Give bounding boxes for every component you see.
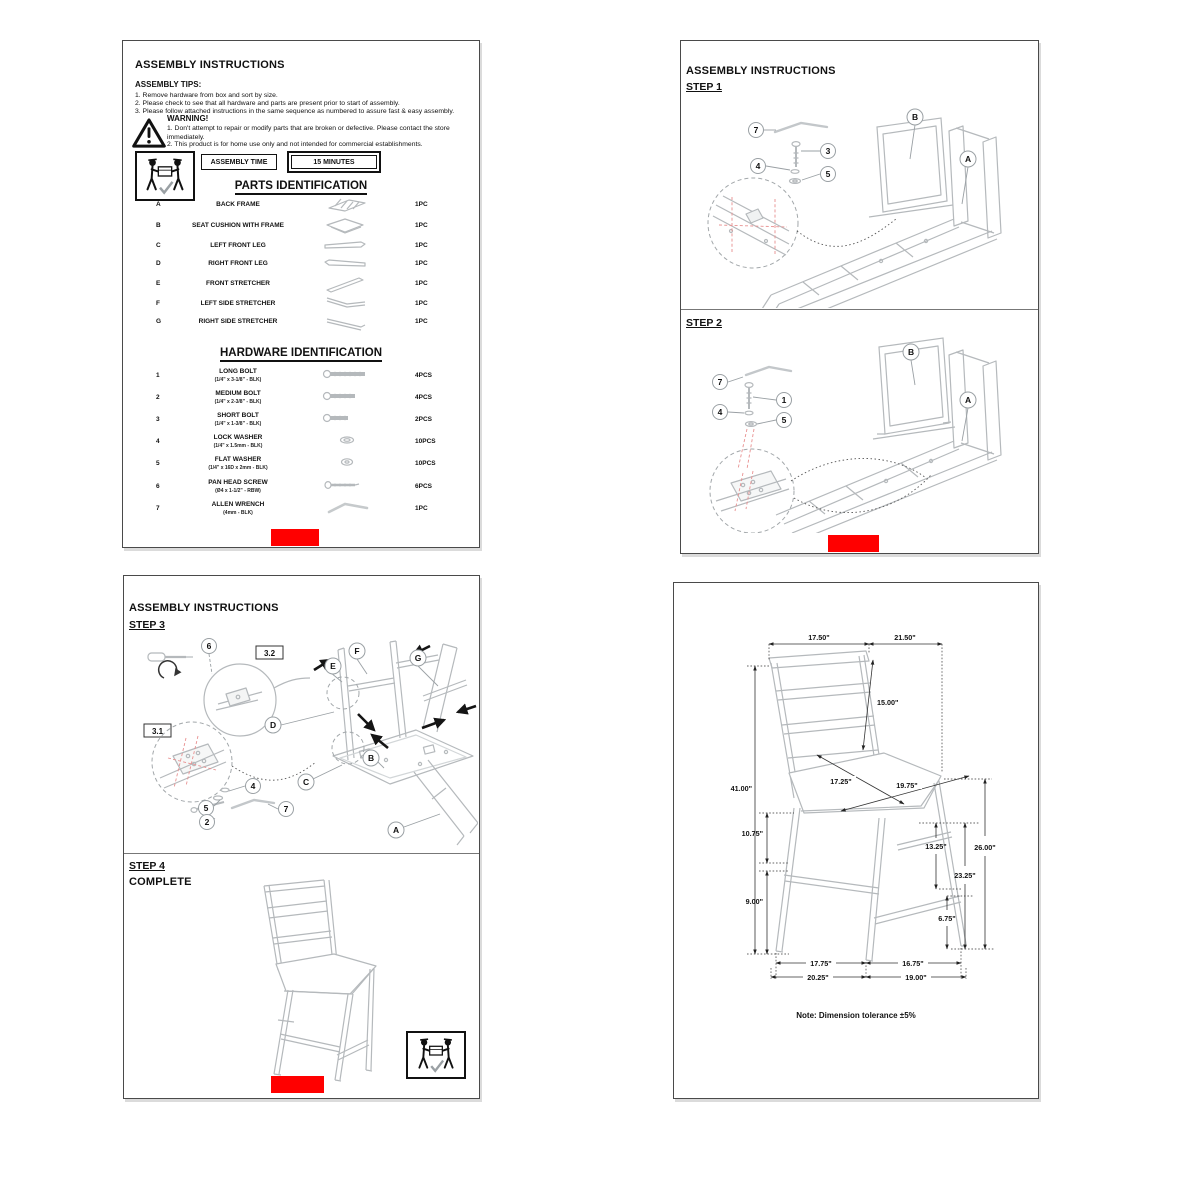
callout-5: 5: [821, 167, 836, 182]
svg-text:5: 5: [826, 169, 831, 179]
dim-overall-depth: 20.25": [807, 973, 828, 982]
short-bolt-icon: [321, 411, 373, 425]
dim-foot-span-left: 17.75": [810, 959, 831, 968]
assembly-time-value: 15 MINUTES: [313, 159, 354, 166]
callout-2: 2: [200, 815, 215, 830]
step3-label: STEP 3: [129, 619, 165, 631]
svg-text:A: A: [393, 825, 399, 835]
step4-status: COMPLETE: [129, 876, 192, 888]
part-qty: 1PC: [415, 318, 428, 325]
dim-overall-width: 19.00": [905, 973, 926, 982]
hw-qty: 1PC: [415, 505, 428, 512]
callout-B: B: [903, 344, 919, 360]
part-qty: 1PC: [415, 222, 428, 229]
part-qty: 1PC: [415, 242, 428, 249]
page-3: ASSEMBLY INSTRUCTIONS STEP 3: [123, 575, 480, 1099]
warning-2: 2. This product is for home use only and…: [167, 141, 457, 150]
hw-id: 5: [156, 460, 160, 467]
hw-qty: 2PCS: [415, 416, 432, 423]
svg-text:G: G: [415, 653, 422, 663]
dim-seat-depth: 17.25": [830, 777, 851, 786]
part-thumb-seat-cushion: [321, 217, 369, 234]
svg-text:4: 4: [718, 407, 723, 417]
hw-name: LOCK WASHER: [163, 434, 313, 441]
callout-F: F: [349, 643, 365, 659]
svg-text:3: 3: [826, 146, 831, 156]
hw-spec: (Ø4 x 1-1/2" - RBW): [163, 488, 313, 494]
assembly-time-value-box: 15 MINUTES: [287, 151, 381, 173]
callout-4: 4: [713, 405, 728, 420]
step-divider: [124, 853, 479, 854]
svg-text:E: E: [330, 661, 336, 671]
callout-4: 4: [751, 159, 766, 174]
tips-heading: ASSEMBLY TIPS:: [135, 80, 201, 89]
callout-A: A: [388, 822, 404, 838]
callout-4: 4: [246, 779, 261, 794]
svg-text:3.1: 3.1: [152, 727, 164, 736]
callout-G: G: [410, 650, 426, 666]
step3-diagram: 3.2 3.1: [128, 638, 478, 851]
svg-text:4: 4: [251, 781, 256, 791]
hw-qty: 10PCS: [415, 460, 436, 467]
svg-text:B: B: [368, 753, 374, 763]
svg-text:1: 1: [782, 395, 787, 405]
svg-text:A: A: [965, 395, 971, 405]
hw-id: 3: [156, 416, 160, 423]
callout-B: B: [363, 750, 379, 766]
hw-name: SHORT BOLT: [163, 412, 313, 419]
redacted-logo-block: [271, 1076, 324, 1093]
hw-qty: 6PCS: [415, 483, 432, 490]
svg-text:B: B: [908, 347, 914, 357]
flat-washer-icon: [321, 455, 373, 469]
hw-id: 6: [156, 483, 160, 490]
page3-title: ASSEMBLY INSTRUCTIONS: [129, 602, 279, 614]
dim-overall-height: 41.00": [731, 784, 752, 793]
part-name: SEAT CUSHION WITH FRAME: [163, 222, 313, 229]
hw-qty: 10PCS: [415, 438, 436, 445]
allen-wrench-icon: [321, 499, 373, 517]
svg-text:B: B: [912, 112, 918, 122]
step1-diagram: 7 3 4 5 B A: [691, 101, 1028, 308]
dim-seat-height: 26.00": [974, 843, 995, 852]
callout-B: B: [907, 109, 923, 125]
callout-D: D: [265, 717, 281, 733]
hw-spec: (1/4" x 16D x 2mm - BLK): [163, 465, 313, 471]
hw-qty: 4PCS: [415, 372, 432, 379]
callout-7: 7: [749, 123, 764, 138]
hw-id: 4: [156, 438, 160, 445]
page-4: 17.50" 21.50" 15.00" 41.00" 17.25" 19.75…: [673, 582, 1039, 1099]
part-thumb-left-side-stretcher: [321, 294, 369, 314]
page1-title: ASSEMBLY INSTRUCTIONS: [135, 59, 285, 71]
hw-spec: (1/4" x 1-3/8" - BLK): [163, 421, 313, 427]
hw-name: MEDIUM BOLT: [163, 390, 313, 397]
dim-seat-to-footrest: 13.25": [925, 842, 946, 851]
parts-heading: PARTS IDENTIFICATION: [235, 180, 367, 195]
part-id: G: [156, 318, 161, 325]
hw-id: 2: [156, 394, 160, 401]
hw-id: 7: [156, 505, 160, 512]
hw-qty: 4PCS: [415, 394, 432, 401]
part-id: D: [156, 260, 161, 267]
part-name: FRONT STRETCHER: [163, 280, 313, 287]
part-thumb-front-stretcher: [321, 274, 369, 294]
svg-text:5: 5: [204, 803, 209, 813]
part-name: RIGHT FRONT LEG: [163, 260, 313, 267]
part-id: E: [156, 280, 160, 287]
svg-text:2: 2: [205, 817, 210, 827]
instruction-sheet-canvas: ASSEMBLY INSTRUCTIONS ASSEMBLY TIPS: 1. …: [0, 0, 1200, 1200]
hw-name: LONG BOLT: [163, 368, 313, 375]
warning-1: 1. Don't attempt to repair or modify par…: [167, 125, 457, 142]
callout-1: 1: [777, 393, 792, 408]
part-thumb-right-side-stretcher: [321, 313, 369, 333]
warning-heading: WARNING!: [167, 114, 208, 123]
hw-name: PAN HEAD SCREW: [163, 479, 313, 486]
part-qty: 1PC: [415, 300, 428, 307]
callout-A: A: [960, 392, 976, 408]
hw-id: 1: [156, 372, 160, 379]
dim-foot-span-right: 16.75": [902, 959, 923, 968]
part-qty: 1PC: [415, 280, 428, 287]
long-bolt-icon: [321, 367, 373, 381]
hardware-heading: HARDWARE IDENTIFICATION: [220, 347, 382, 362]
dimension-diagram: 17.50" 21.50" 15.00" 41.00" 17.25" 19.75…: [689, 608, 1023, 998]
pan-head-screw-icon: [321, 478, 373, 492]
dim-stretcher-to-floor: 9.00": [746, 897, 763, 906]
redacted-logo-block: [828, 535, 879, 552]
part-thumb-left-front-leg: [321, 239, 369, 251]
detail-box-3-2: 3.2: [256, 646, 283, 659]
dim-seat-proj: 21.50": [894, 633, 915, 642]
redacted-logo-block: [271, 529, 319, 546]
svg-text:3.2: 3.2: [264, 649, 276, 658]
dim-seat-bottom-to-floor: 23.25": [954, 871, 975, 880]
part-name: RIGHT SIDE STRETCHER: [163, 318, 313, 325]
svg-text:D: D: [270, 720, 276, 730]
dim-back-panel: 15.00": [877, 698, 898, 707]
page-2: ASSEMBLY INSTRUCTIONS STEP 1: [680, 40, 1039, 554]
callout-C: C: [298, 774, 314, 790]
step4-label: STEP 4: [129, 860, 165, 872]
tolerance-note: Note: Dimension tolerance ±5%: [674, 1011, 1038, 1020]
part-thumb-right-front-leg: [321, 257, 369, 269]
callout-6: 6: [202, 639, 217, 654]
svg-text:7: 7: [284, 804, 289, 814]
warning-triangle-icon: [131, 117, 167, 150]
page-1: ASSEMBLY INSTRUCTIONS ASSEMBLY TIPS: 1. …: [122, 40, 480, 548]
hw-name: ALLEN WRENCH: [163, 501, 313, 508]
hw-spec: (1/4" x 2-3/8" - BLK): [163, 399, 313, 405]
part-name: LEFT FRONT LEG: [163, 242, 313, 249]
part-qty: 1PC: [415, 201, 428, 208]
dim-footrest-to-floor: 6.75": [938, 914, 955, 923]
part-name: BACK FRAME: [163, 201, 313, 208]
step2-label: STEP 2: [686, 317, 722, 329]
hw-spec: (1/4" x 3-1/8" - BLK): [163, 377, 313, 383]
callout-7: 7: [279, 802, 294, 817]
assembly-time-label: ASSEMBLY TIME: [211, 159, 268, 166]
part-thumb-back-frame: [321, 196, 369, 212]
part-id: B: [156, 222, 161, 229]
dim-seat-to-stretcher: 10.75": [742, 829, 763, 838]
two-person-carry-box: [406, 1031, 466, 1079]
two-person-carry-icon: [411, 1036, 461, 1074]
svg-text:F: F: [354, 646, 359, 656]
svg-text:6: 6: [207, 641, 212, 651]
part-name: LEFT SIDE STRETCHER: [163, 300, 313, 307]
hw-name: FLAT WASHER: [163, 456, 313, 463]
svg-text:7: 7: [718, 377, 723, 387]
lock-washer-icon: [321, 433, 373, 447]
step4-chair-drawing: [236, 872, 396, 1084]
part-id: A: [156, 201, 161, 208]
callout-E: E: [325, 658, 341, 674]
page2-title: ASSEMBLY INSTRUCTIONS: [686, 65, 836, 77]
callout-7: 7: [713, 375, 728, 390]
step2-diagram: 7 1 4 5 B A: [691, 333, 1028, 533]
svg-text:5: 5: [782, 415, 787, 425]
svg-text:7: 7: [754, 125, 759, 135]
callout-5: 5: [199, 801, 214, 816]
dim-seat-width: 19.75": [896, 781, 917, 790]
svg-text:A: A: [965, 154, 971, 164]
step-divider: [681, 309, 1038, 310]
hw-spec: (4mm - BLK): [163, 510, 313, 516]
part-id: C: [156, 242, 161, 249]
callout-A: A: [960, 151, 976, 167]
svg-text:C: C: [303, 777, 309, 787]
hw-spec: (1/4" x 1.5mm - BLK): [163, 443, 313, 449]
assembly-time-label-box: ASSEMBLY TIME: [201, 154, 277, 170]
part-id: F: [156, 300, 160, 307]
part-qty: 1PC: [415, 260, 428, 267]
medium-bolt-icon: [321, 389, 373, 403]
svg-text:4: 4: [756, 161, 761, 171]
callout-5: 5: [777, 413, 792, 428]
callout-3: 3: [821, 144, 836, 159]
step1-label: STEP 1: [686, 81, 722, 93]
dim-back-width: 17.50": [808, 633, 829, 642]
